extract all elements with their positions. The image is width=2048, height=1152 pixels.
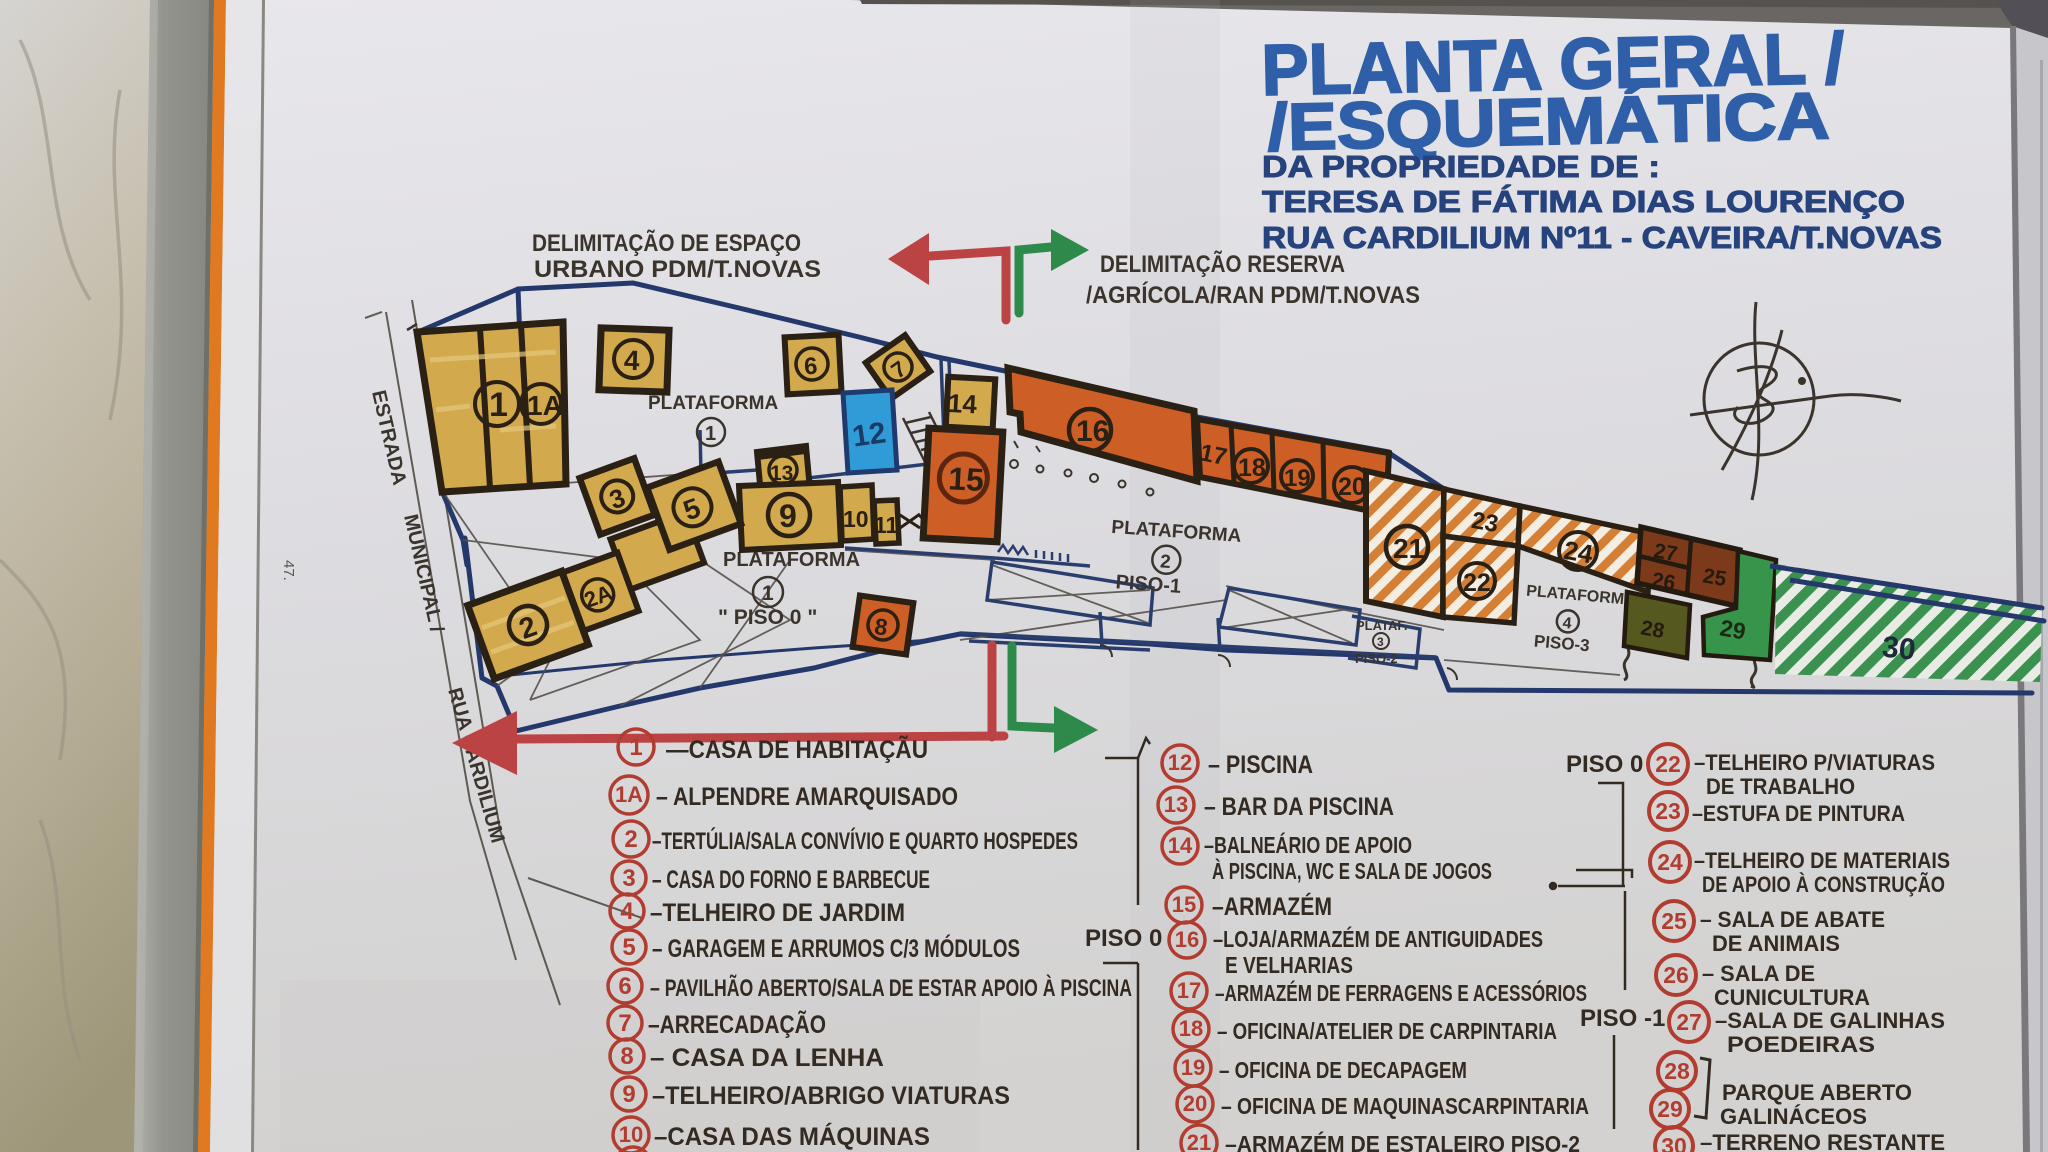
svg-text:2: 2 (624, 826, 637, 853)
svg-text:22: 22 (1655, 751, 1681, 777)
svg-text:/AGRÍCOLA/RAN PDM/T.NOVAS: /AGRÍCOLA/RAN PDM/T.NOVAS (1086, 281, 1420, 309)
svg-text:PISO -1: PISO -1 (1580, 1005, 1665, 1032)
svg-text:–TELHEIRO DE JARDIM: –TELHEIRO DE JARDIM (650, 899, 905, 927)
svg-text:15: 15 (947, 460, 984, 498)
svg-text:– ALPENDRE AMARQUISADO: – ALPENDRE AMARQUISADO (656, 783, 958, 811)
svg-text:17: 17 (1177, 978, 1201, 1003)
svg-text:6: 6 (803, 353, 818, 381)
svg-text:– PAVILHÃO ABERTO/SALA DE ESTA: – PAVILHÃO ABERTO/SALA DE ESTAR APOIO À … (650, 974, 1132, 1002)
svg-text:DE TRABALHO: DE TRABALHO (1706, 774, 1855, 799)
svg-text:26: 26 (1650, 568, 1677, 595)
svg-text:28: 28 (1639, 616, 1666, 643)
svg-text:–CASA DAS MÁQUINAS: –CASA DAS MÁQUINAS (654, 1122, 930, 1151)
svg-text:TERESA DE FÁTIMA DIAS LOURENÇO: TERESA DE FÁTIMA DIAS LOURENÇO (1262, 184, 1905, 219)
svg-text:–TERRENO RESTANTE: –TERRENO RESTANTE (1700, 1130, 1945, 1152)
svg-text:PARQUE ABERTO: PARQUE ABERTO (1722, 1080, 1912, 1105)
svg-text:21: 21 (1393, 533, 1424, 564)
svg-text:GALINÁCEOS: GALINÁCEOS (1720, 1104, 1867, 1129)
svg-text:18: 18 (1179, 1016, 1203, 1041)
svg-text:27: 27 (1676, 1009, 1702, 1035)
svg-text:3: 3 (622, 865, 635, 892)
svg-text:9: 9 (779, 498, 797, 534)
svg-text:" PISO 0 ": " PISO 0 " (718, 606, 817, 629)
svg-text:29: 29 (1718, 614, 1748, 644)
svg-text:8: 8 (620, 1043, 633, 1070)
svg-text:–TELHEIRO DE MATERIAIS: –TELHEIRO DE MATERIAIS (1694, 848, 1950, 873)
svg-text:–TELHEIRO/ABRIGO VIATURAS: –TELHEIRO/ABRIGO VIATURAS (652, 1082, 1010, 1110)
svg-text:–ARMAZÉM DE FERRAGENS E ACESSÓ: –ARMAZÉM DE FERRAGENS E ACESSÓRIOS (1215, 979, 1587, 1006)
svg-text:23: 23 (1655, 798, 1681, 824)
svg-text:PISO 0: PISO 0 (1566, 751, 1643, 778)
svg-text:–ARMAZÉM: –ARMAZÉM (1212, 892, 1332, 921)
svg-text:47.: 47. (280, 560, 297, 581)
svg-text:7: 7 (618, 1010, 631, 1037)
svg-text:20: 20 (1338, 473, 1366, 501)
svg-text:– OFICINA/ATELIER DE CARPINTAR: – OFICINA/ATELIER DE CARPINTARIA (1217, 1018, 1557, 1044)
svg-text:25: 25 (1661, 908, 1687, 934)
svg-text:13: 13 (1164, 792, 1188, 817)
svg-text:POEDEIRAS: POEDEIRAS (1727, 1032, 1875, 1057)
svg-text:1: 1 (705, 423, 716, 445)
svg-text:30: 30 (1881, 631, 1918, 667)
svg-text:CUNICULTURA: CUNICULTURA (1714, 985, 1870, 1010)
svg-text:15: 15 (1172, 892, 1196, 917)
svg-text:– CASA DA LENHA: – CASA DA LENHA (650, 1044, 884, 1072)
svg-text:–TERTÚLIA/SALA CONVÍVIO E QUAR: –TERTÚLIA/SALA CONVÍVIO E QUARTO HOSPEDE… (652, 827, 1078, 855)
svg-text:DE APOIO À CONSTRUÇÃO: DE APOIO À CONSTRUÇÃO (1702, 872, 1945, 897)
svg-text:12: 12 (1168, 750, 1192, 775)
svg-text:30: 30 (1661, 1133, 1687, 1152)
svg-text:24: 24 (1561, 535, 1595, 570)
svg-text:PLATAF.: PLATAF. (1356, 618, 1408, 633)
svg-text:1A: 1A (527, 390, 563, 421)
svg-text:27: 27 (1652, 539, 1679, 566)
svg-text:– OFICINA DE DECAPAGEM: – OFICINA DE DECAPAGEM (1219, 1057, 1467, 1083)
svg-text:–LOJA/ARMAZÉM DE ANTIGUIDADES: –LOJA/ARMAZÉM DE ANTIGUIDADES (1213, 925, 1543, 952)
svg-text:PLATAFORMA: PLATAFORMA (648, 393, 778, 414)
svg-text:5: 5 (622, 934, 635, 961)
svg-text:–ARRECADAÇÃO: –ARRECADAÇÃO (648, 1009, 826, 1039)
svg-text:11: 11 (874, 512, 899, 538)
svg-text:28: 28 (1664, 1058, 1690, 1084)
svg-text:10: 10 (843, 506, 869, 532)
svg-text:–TELHEIRO P/VIATURAS: –TELHEIRO P/VIATURAS (1694, 750, 1935, 775)
svg-text:– BAR DA PISCINA: – BAR DA PISCINA (1204, 793, 1394, 821)
svg-text:16: 16 (1076, 415, 1109, 448)
svg-text:– OFICINA DE MAQUINASCARPINTAR: – OFICINA DE MAQUINASCARPINTARIA (1221, 1093, 1589, 1119)
svg-text:– GARAGEM E ARRUMOS C/3 MÓDULO: – GARAGEM E ARRUMOS C/3 MÓDULOS (652, 933, 1020, 963)
svg-text:4: 4 (623, 345, 640, 377)
svg-text:RUA CARDILIUM Nº11 - CAVEIRA/T: RUA CARDILIUM Nº11 - CAVEIRA/T.NOVAS (1262, 220, 1942, 255)
svg-text:21: 21 (1187, 1130, 1211, 1152)
svg-text:17: 17 (1198, 439, 1230, 471)
svg-text:– SALA DE: – SALA DE (1702, 961, 1815, 986)
svg-text:1: 1 (762, 582, 774, 605)
svg-text:19: 19 (1284, 465, 1311, 492)
svg-text:PISO 0: PISO 0 (1085, 925, 1162, 952)
svg-text:10: 10 (619, 1122, 643, 1147)
svg-text:–ESTUFA DE PINTURA: –ESTUFA DE PINTURA (1692, 801, 1905, 826)
svg-text:DELIMITAÇÃO RESERVA: DELIMITAÇÃO RESERVA (1100, 250, 1345, 278)
svg-text:–ARMAZÉM DE ESTALEIRO PISO-2: –ARMAZÉM DE ESTALEIRO PISO-2 (1225, 1130, 1580, 1152)
svg-text:–SALA DE GALINHAS: –SALA DE GALINHAS (1715, 1008, 1945, 1033)
svg-text:29: 29 (1657, 1096, 1683, 1122)
svg-text:3: 3 (1377, 635, 1384, 649)
svg-text:2: 2 (1159, 551, 1171, 573)
svg-text:—CASA DE HABITAÇÃU: —CASA DE HABITAÇÃU (666, 734, 928, 764)
svg-text:URBANO PDM/T.NOVAS: URBANO PDM/T.NOVAS (534, 256, 821, 283)
svg-text:E VELHARIAS: E VELHARIAS (1225, 952, 1353, 978)
svg-text:26: 26 (1663, 962, 1689, 988)
svg-text:DA PROPRIEDADE DE :: DA PROPRIEDADE DE : (1262, 149, 1660, 184)
svg-text:24: 24 (1657, 849, 1683, 875)
svg-text:À PISCINA, WC E SALA DE JOGOS: À PISCINA, WC E SALA DE JOGOS (1212, 857, 1492, 884)
svg-text:1: 1 (489, 386, 508, 424)
svg-text:– PISCINA: – PISCINA (1208, 751, 1313, 779)
svg-text:4: 4 (1562, 615, 1572, 633)
svg-text:18: 18 (1238, 454, 1266, 482)
svg-text:PISO-1: PISO-1 (1115, 571, 1182, 598)
svg-text:4: 4 (620, 898, 634, 925)
svg-text:14: 14 (1168, 833, 1193, 858)
svg-text:1: 1 (629, 734, 642, 761)
svg-text:DELIMITAÇÃO DE ESPAÇO: DELIMITAÇÃO DE ESPAÇO (532, 229, 801, 257)
svg-text:22: 22 (1463, 569, 1491, 597)
svg-text:– CASA DO FORNO E BARBECUE: – CASA DO FORNO E BARBECUE (652, 866, 930, 894)
svg-text:12: 12 (850, 416, 888, 453)
svg-text:14: 14 (947, 388, 978, 420)
svg-text:–BALNEÁRIO DE APOIO: –BALNEÁRIO DE APOIO (1204, 831, 1412, 858)
svg-text:23: 23 (1469, 507, 1500, 538)
svg-text:16: 16 (1175, 927, 1199, 952)
svg-text:DE ANIMAIS: DE ANIMAIS (1712, 931, 1840, 956)
svg-text:20: 20 (1183, 1091, 1207, 1116)
svg-text:6: 6 (618, 973, 631, 1000)
svg-text:19: 19 (1181, 1055, 1205, 1080)
svg-text:25: 25 (1701, 564, 1728, 591)
svg-text:– SALA DE ABATE: – SALA DE ABATE (1700, 907, 1885, 932)
svg-text:9: 9 (622, 1081, 635, 1108)
svg-text:PISO-2: PISO-2 (1355, 651, 1398, 666)
svg-text:1A: 1A (615, 782, 643, 807)
